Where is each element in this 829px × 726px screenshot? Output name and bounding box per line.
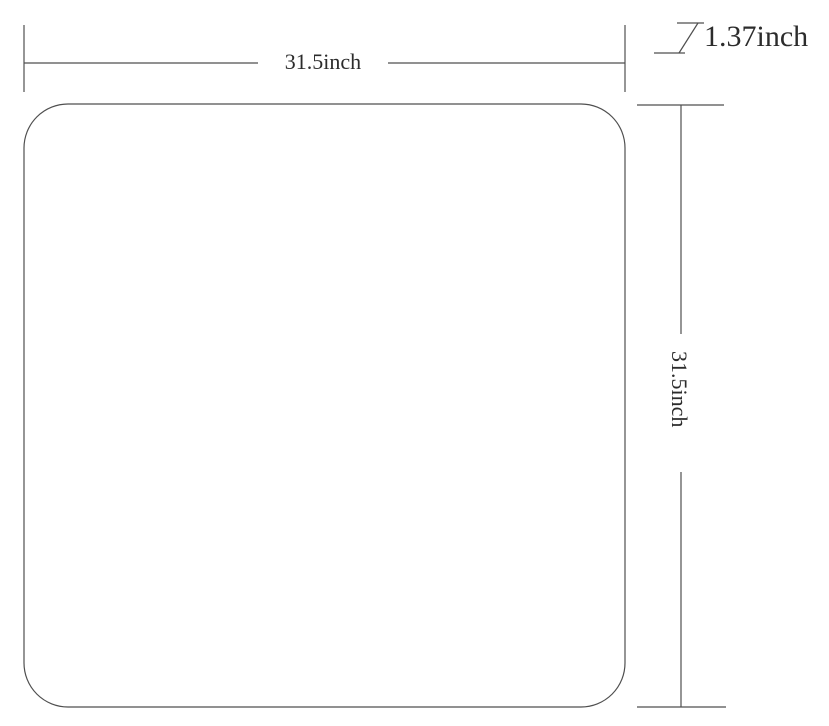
panel-outline <box>24 104 625 707</box>
thickness-symbol-slash <box>679 23 698 53</box>
width-dimension-label: 31.5inch <box>258 48 388 76</box>
thickness-symbol-icon <box>654 23 704 53</box>
height-dimension-label: 31.5inch <box>666 351 692 427</box>
dimension-diagram: 31.5inch 31.5inch 1.37inch <box>0 0 829 726</box>
thickness-dimension-label: 1.37inch <box>704 20 808 54</box>
diagram-linework <box>0 0 829 726</box>
